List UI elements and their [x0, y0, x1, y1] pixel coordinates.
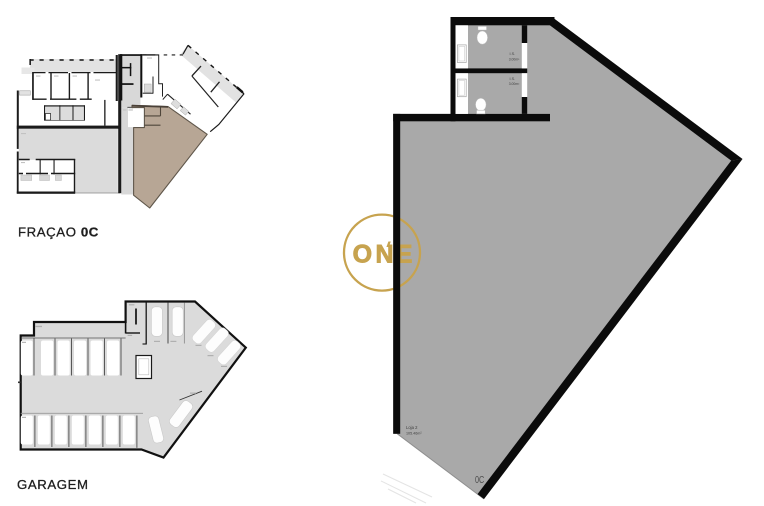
svg-text:Loja 2: Loja 2 — [406, 425, 418, 430]
svg-text:0C: 0C — [475, 474, 484, 486]
svg-text:105.46m²: 105.46m² — [406, 432, 422, 436]
svg-text:3.00m²: 3.00m² — [509, 82, 520, 86]
svg-text:3.00m²: 3.00m² — [509, 57, 520, 61]
svg-text:ON: ON — [353, 241, 397, 269]
svg-text:I.S.: I.S. — [510, 52, 516, 56]
svg-text:I.S.: I.S. — [510, 77, 516, 81]
svg-text:FRAÇAO 0C: FRAÇAO 0C — [18, 225, 99, 240]
svg-text:GARAGEM: GARAGEM — [17, 477, 89, 492]
